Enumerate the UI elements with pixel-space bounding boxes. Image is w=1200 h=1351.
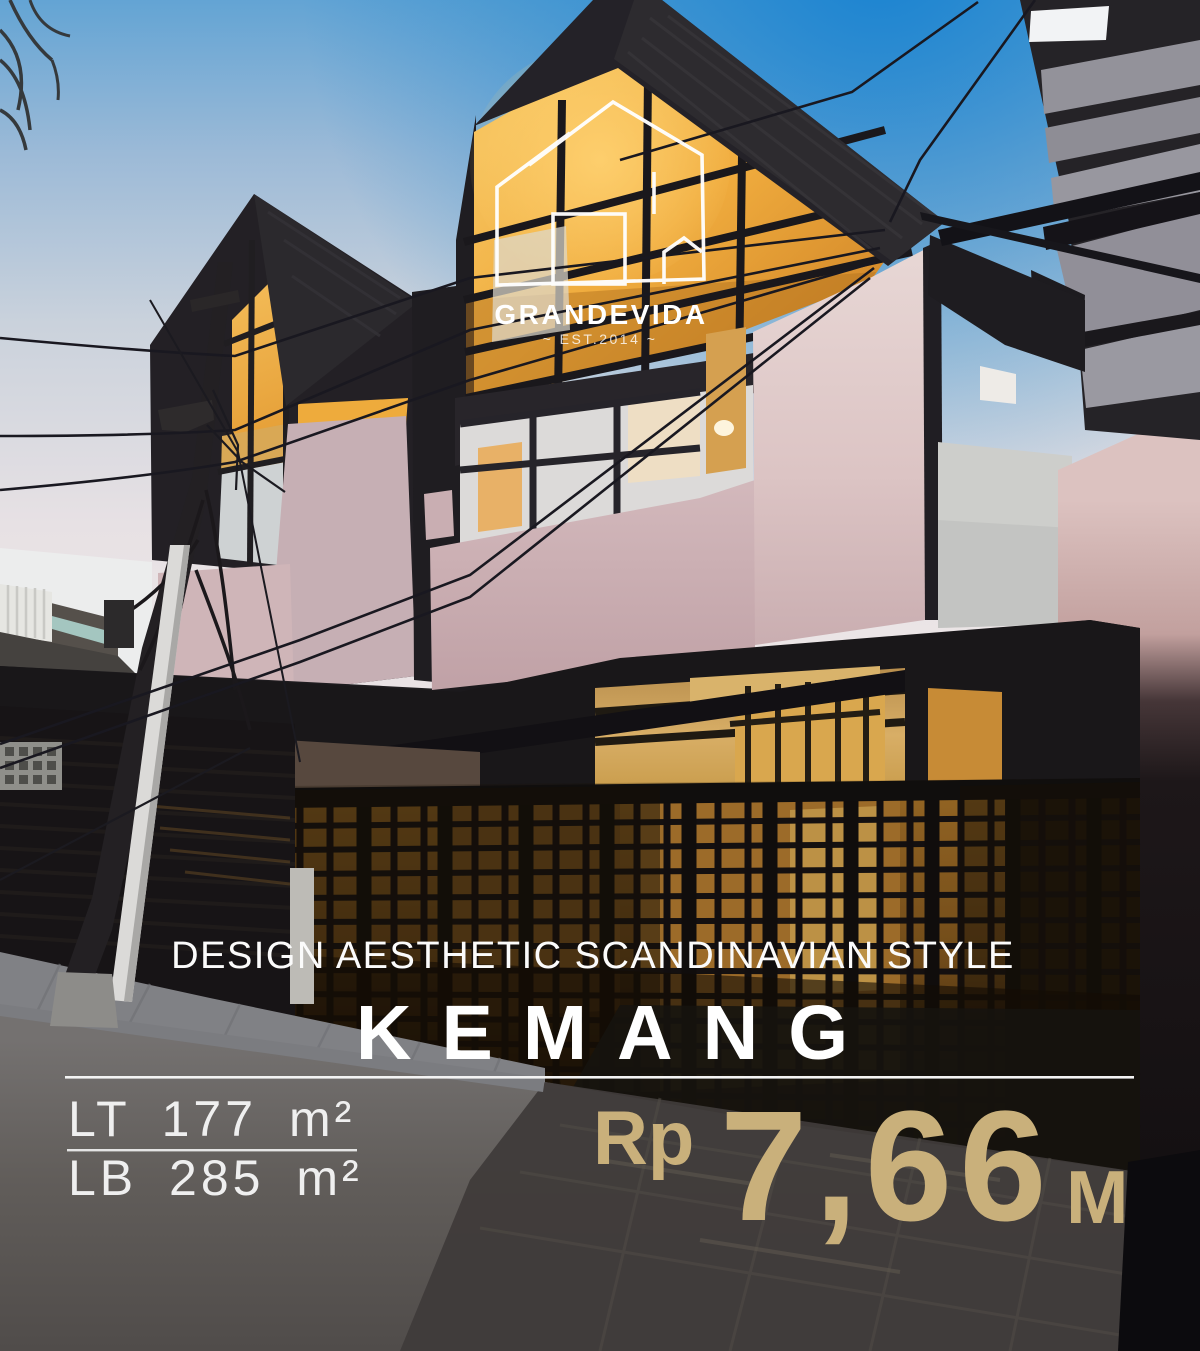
svg-text:7,66: 7,66 bbox=[720, 1079, 1054, 1254]
svg-text:LB 285 m²: LB 285 m² bbox=[68, 1150, 363, 1206]
svg-text:GRANDEVIDA: GRANDEVIDA bbox=[494, 299, 707, 330]
svg-text:Rp: Rp bbox=[593, 1096, 694, 1181]
svg-text:M: M bbox=[1066, 1155, 1128, 1239]
svg-text:DESIGN AESTHETIC SCANDINAVIAN: DESIGN AESTHETIC SCANDINAVIAN STYLE bbox=[171, 935, 1015, 977]
svg-text:~ EST.2014 ~: ~ EST.2014 ~ bbox=[543, 331, 658, 347]
svg-text:LT 177 m²: LT 177 m² bbox=[68, 1091, 355, 1147]
svg-text:KEMANG: KEMANG bbox=[356, 990, 878, 1076]
